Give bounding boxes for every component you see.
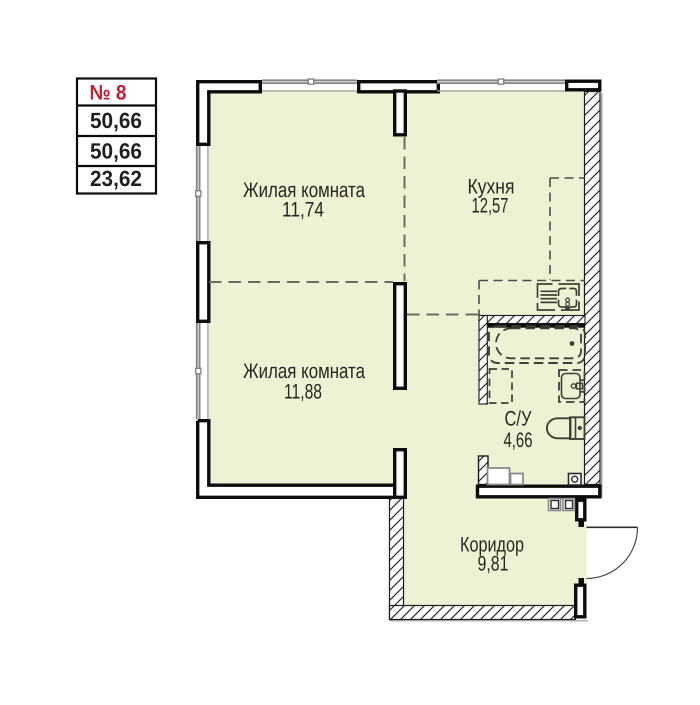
- svg-text:23,62: 23,62: [90, 166, 142, 191]
- svg-text:50,66: 50,66: [90, 108, 142, 133]
- svg-text:12,57: 12,57: [472, 195, 509, 218]
- svg-text:9,81: 9,81: [478, 553, 509, 576]
- svg-text:№ 8: № 8: [90, 82, 127, 105]
- svg-text:11,88: 11,88: [284, 381, 322, 404]
- svg-text:4,66: 4,66: [504, 429, 533, 452]
- svg-text:11,74: 11,74: [282, 199, 324, 222]
- svg-text:С/У: С/У: [505, 408, 533, 431]
- svg-text:50,66: 50,66: [90, 139, 142, 164]
